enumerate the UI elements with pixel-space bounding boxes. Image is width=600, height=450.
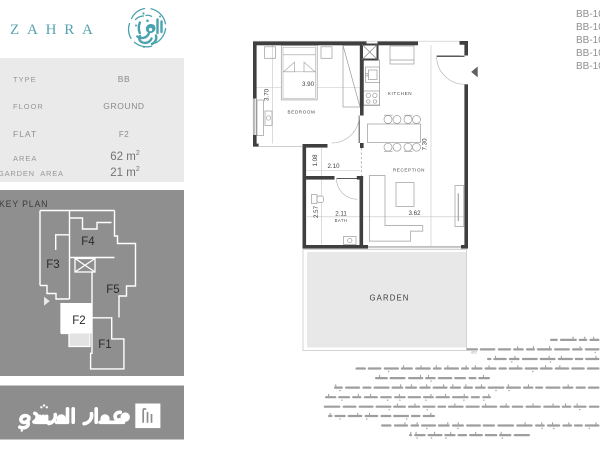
svg-text:RECEPTION: RECEPTION xyxy=(393,168,425,173)
svg-text:7.30: 7.30 xyxy=(422,138,429,151)
svg-text:GARDEN: GARDEN xyxy=(370,294,410,303)
svg-text:F5: F5 xyxy=(106,284,119,296)
svg-text:3.70: 3.70 xyxy=(264,88,271,101)
svg-text:3.90: 3.90 xyxy=(302,81,315,88)
svg-text:F2: F2 xyxy=(72,315,85,327)
svg-text:BEDROOM: BEDROOM xyxy=(288,110,316,115)
svg-text:2.57: 2.57 xyxy=(313,205,320,218)
svg-text:F4: F4 xyxy=(81,236,95,248)
svg-text:2.10: 2.10 xyxy=(327,163,340,170)
svg-text:KITCHEN: KITCHEN xyxy=(388,91,412,96)
svg-text:1.08: 1.08 xyxy=(312,154,319,167)
svg-text:KEY PLAN: KEY PLAN xyxy=(0,199,48,209)
svg-text:BATH: BATH xyxy=(335,218,348,223)
svg-text:2.11: 2.11 xyxy=(335,211,347,218)
svg-text:3.62: 3.62 xyxy=(408,210,421,217)
svg-text:F1: F1 xyxy=(98,339,111,351)
svg-text:F3: F3 xyxy=(46,259,59,271)
svg-text:.d02: .d02 xyxy=(470,351,477,355)
